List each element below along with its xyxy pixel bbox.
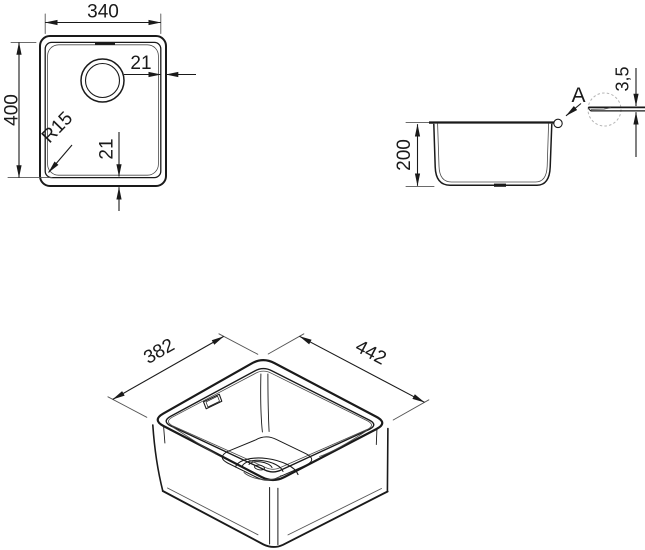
bowl-opening-contour-iso	[166, 369, 374, 472]
body-bottom-highlight	[168, 488, 259, 535]
body-bottom-edge	[163, 491, 388, 547]
top-view-bottom-offset-dimension: 21	[97, 138, 118, 159]
extension-line	[219, 334, 258, 355]
top-view: 340 400 21 R15 21	[2, 2, 197, 212]
detail-marker-label: A	[571, 84, 585, 107]
body-left-edge	[153, 425, 163, 491]
body-bottom-highlight	[288, 489, 382, 535]
side-view-depth-dimension: 200	[394, 139, 415, 171]
extension-line	[108, 397, 147, 418]
extension-line	[393, 400, 429, 420]
rim-thickness-dimension: 3,5	[613, 66, 633, 91]
extension-line	[268, 334, 304, 354]
body-left-corner-tick	[164, 427, 165, 444]
detail-marker-circle	[554, 119, 562, 127]
top-view-length-dimension: 400	[2, 94, 23, 126]
body-right-corner-tick	[376, 430, 377, 445]
top-view-drain-offset-dimension: 21	[130, 53, 151, 74]
isometric-view: 382 442	[108, 334, 429, 547]
technical-drawing-page: 340 400 21 R15 21 200 A	[0, 0, 645, 550]
iso-outer-width-dimension: 382	[140, 335, 178, 369]
top-view-width-dimension: 340	[87, 2, 119, 23]
side-view: 200 A 3,5	[394, 66, 645, 186]
iso-outer-length-dimension: 442	[352, 336, 390, 369]
bowl-outer-wall-side-view	[434, 124, 552, 185]
sink-technical-drawing: 340 400 21 R15 21 200 A	[0, 0, 645, 550]
body-right-edge	[387, 429, 388, 492]
